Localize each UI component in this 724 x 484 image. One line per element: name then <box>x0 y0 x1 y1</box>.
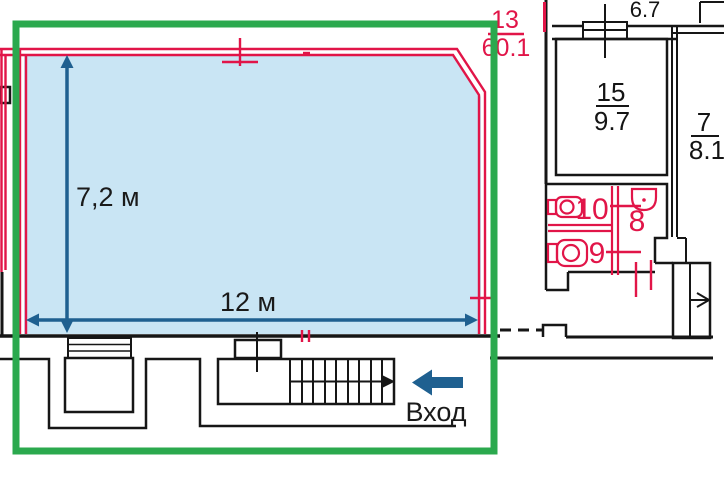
depth-dimension-label: 7,2 м <box>76 182 140 212</box>
room7-number: 7 <box>697 107 711 137</box>
room15-label: 15 9.7 <box>594 77 630 136</box>
room15-area: 9.7 <box>594 106 630 136</box>
entrance-arrow <box>412 370 463 396</box>
room15-number: 15 <box>597 77 626 107</box>
wc9-label: 9 <box>589 237 606 270</box>
room6-area-label: 6.7 <box>630 0 661 22</box>
area13-label: 13 60.1 <box>482 6 531 62</box>
wc10-label: 10 <box>575 193 608 226</box>
staircase <box>218 359 395 404</box>
room7-area: 8.1 <box>689 135 724 165</box>
plan-labels: 6.7 15 9.7 7 8.1 13 60.1 10 9 8 <box>482 0 724 270</box>
width-dimension-label: 12 м <box>220 287 276 317</box>
room7-label: 7 8.1 <box>689 107 724 165</box>
entrance-label: Вход <box>405 397 466 427</box>
door-block <box>673 263 710 338</box>
floor-plan: 6.7 15 9.7 7 8.1 13 60.1 10 9 8 <box>0 0 724 484</box>
entrance-annotation: Вход <box>405 370 466 428</box>
toilet-icon-9 <box>548 240 587 266</box>
wc8-label: 8 <box>629 205 646 238</box>
area13-area: 60.1 <box>482 34 531 62</box>
